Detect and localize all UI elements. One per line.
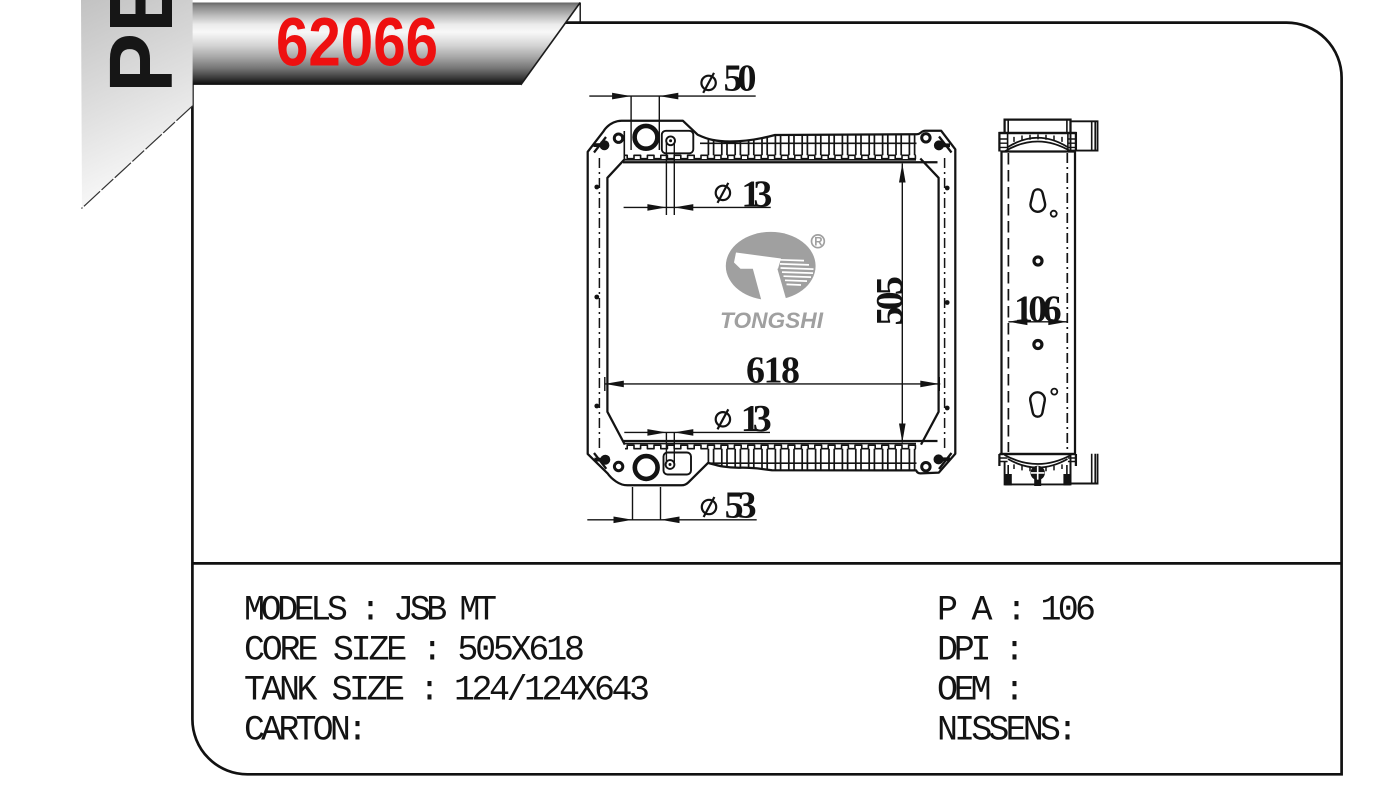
svg-text:MODELS : JSB MT: MODELS : JSB MT	[244, 591, 497, 631]
svg-text:CARTON:: CARTON:	[244, 711, 368, 751]
svg-text:13: 13	[741, 174, 772, 216]
svg-text:618: 618	[746, 350, 800, 392]
svg-text:TANK SIZE : 124/124X643: TANK SIZE : 124/124X643	[244, 671, 650, 711]
svg-text:50: 50	[724, 58, 757, 100]
svg-text:62066: 62066	[276, 4, 438, 81]
svg-text:OEM :: OEM :	[937, 671, 1025, 711]
svg-text:NISSENS:: NISSENS:	[937, 711, 1078, 751]
svg-text:53: 53	[725, 484, 757, 526]
svg-text:R: R	[814, 236, 823, 248]
svg-text:CORE SIZE : 505X618: CORE SIZE : 505X618	[244, 631, 585, 671]
svg-text:DPI :: DPI :	[937, 631, 1025, 671]
svg-text:13: 13	[741, 398, 772, 440]
svg-text:PE: PE	[92, 0, 192, 93]
svg-text:TONGSHI: TONGSHI	[720, 308, 824, 333]
svg-text:505: 505	[869, 276, 911, 325]
svg-text:P A : 106: P A : 106	[937, 591, 1096, 631]
